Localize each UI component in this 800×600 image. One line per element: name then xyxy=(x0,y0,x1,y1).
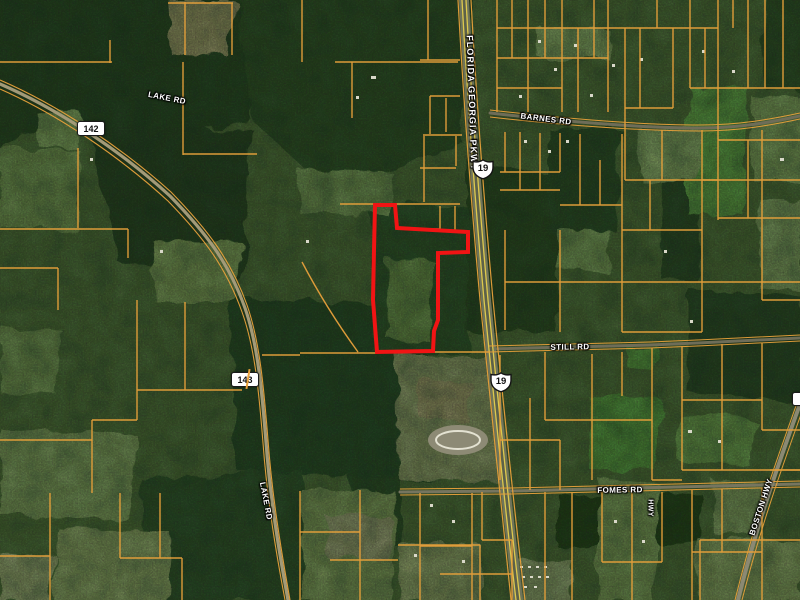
map-canvas xyxy=(0,0,800,600)
route-shield-partial-right-edge xyxy=(792,392,800,406)
us-19-number-north: 19 xyxy=(472,163,494,174)
oval-track xyxy=(428,425,488,455)
us-19-number-south: 19 xyxy=(490,376,512,387)
us-route-shield-19-south: 19 xyxy=(490,372,512,393)
us-route-shield-19-north: 19 xyxy=(472,159,494,180)
satellite-parcel-map[interactable]: LAKE RD FLORIDA GEORGIA PKWY BARNES RD S… xyxy=(0,0,800,600)
route-shield-142: 142 xyxy=(77,121,105,136)
